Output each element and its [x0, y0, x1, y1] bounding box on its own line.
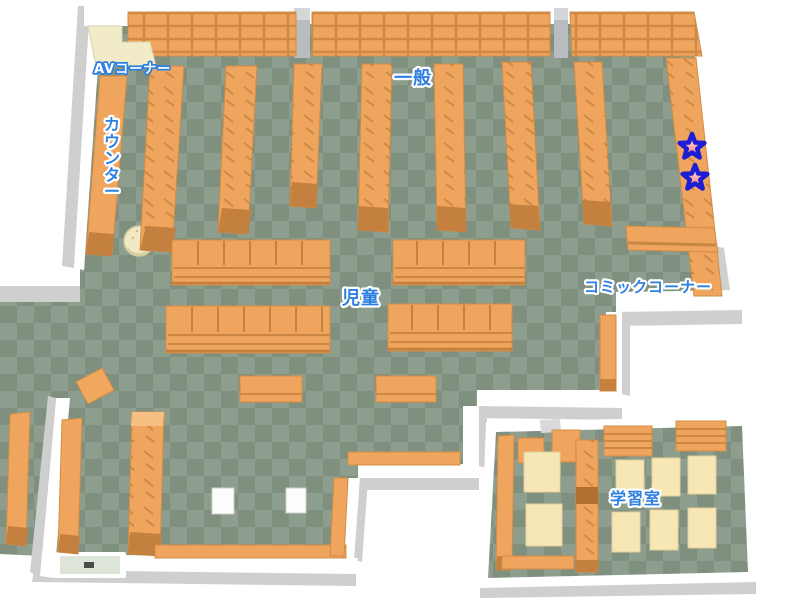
step-wall-4-front — [358, 478, 479, 490]
wall-shelf-strip — [348, 452, 460, 465]
bookshelf — [6, 412, 30, 546]
low-bookshelf — [393, 240, 525, 285]
label-counter: カウンター — [104, 115, 121, 201]
wall-bookshelves — [128, 12, 702, 56]
low-bookshelf — [166, 306, 330, 353]
magazine-rack — [604, 426, 652, 456]
label-children: 児童 — [341, 287, 380, 309]
step-wall-4 — [358, 464, 479, 478]
bench — [240, 376, 302, 402]
step-wall-3 — [463, 406, 479, 466]
bookshelf — [358, 64, 392, 232]
magazine-rack — [676, 421, 726, 451]
library-floor-map: AVコーナー 一般 カウンター 児童 コミックコーナー 学習室 — [0, 0, 800, 600]
bench — [376, 376, 436, 402]
floor-map-canvas: AVコーナー 一般 カウンター 児童 コミックコーナー 学習室 — [0, 0, 800, 600]
kiosk — [286, 488, 306, 513]
entrance-door — [54, 552, 126, 578]
step-wall-1-side — [622, 314, 630, 396]
entry-wall — [0, 268, 80, 286]
bookshelf — [58, 418, 82, 554]
top-left-corner-wall — [84, 6, 130, 26]
bookshelf — [290, 64, 322, 208]
label-study-room: 学習室 — [610, 489, 661, 508]
label-av-corner: AVコーナー — [94, 62, 171, 77]
wall-pillar — [554, 8, 568, 58]
low-bookshelf — [172, 240, 330, 285]
door-handle — [84, 562, 94, 568]
wall-shelf-strip — [155, 545, 346, 558]
divider-doorway — [576, 487, 598, 504]
bookshelf — [128, 412, 164, 556]
bookshelf — [434, 64, 466, 232]
label-comic-corner: コミックコーナー — [584, 278, 712, 296]
label-general: 一般 — [394, 67, 432, 89]
entry-wall-front — [0, 286, 80, 302]
comic-south-wall-front — [616, 310, 742, 326]
step-wall-2 — [477, 392, 622, 408]
low-bookshelf — [388, 304, 512, 351]
kiosk — [212, 488, 234, 514]
step-wall-2-front — [477, 406, 622, 420]
